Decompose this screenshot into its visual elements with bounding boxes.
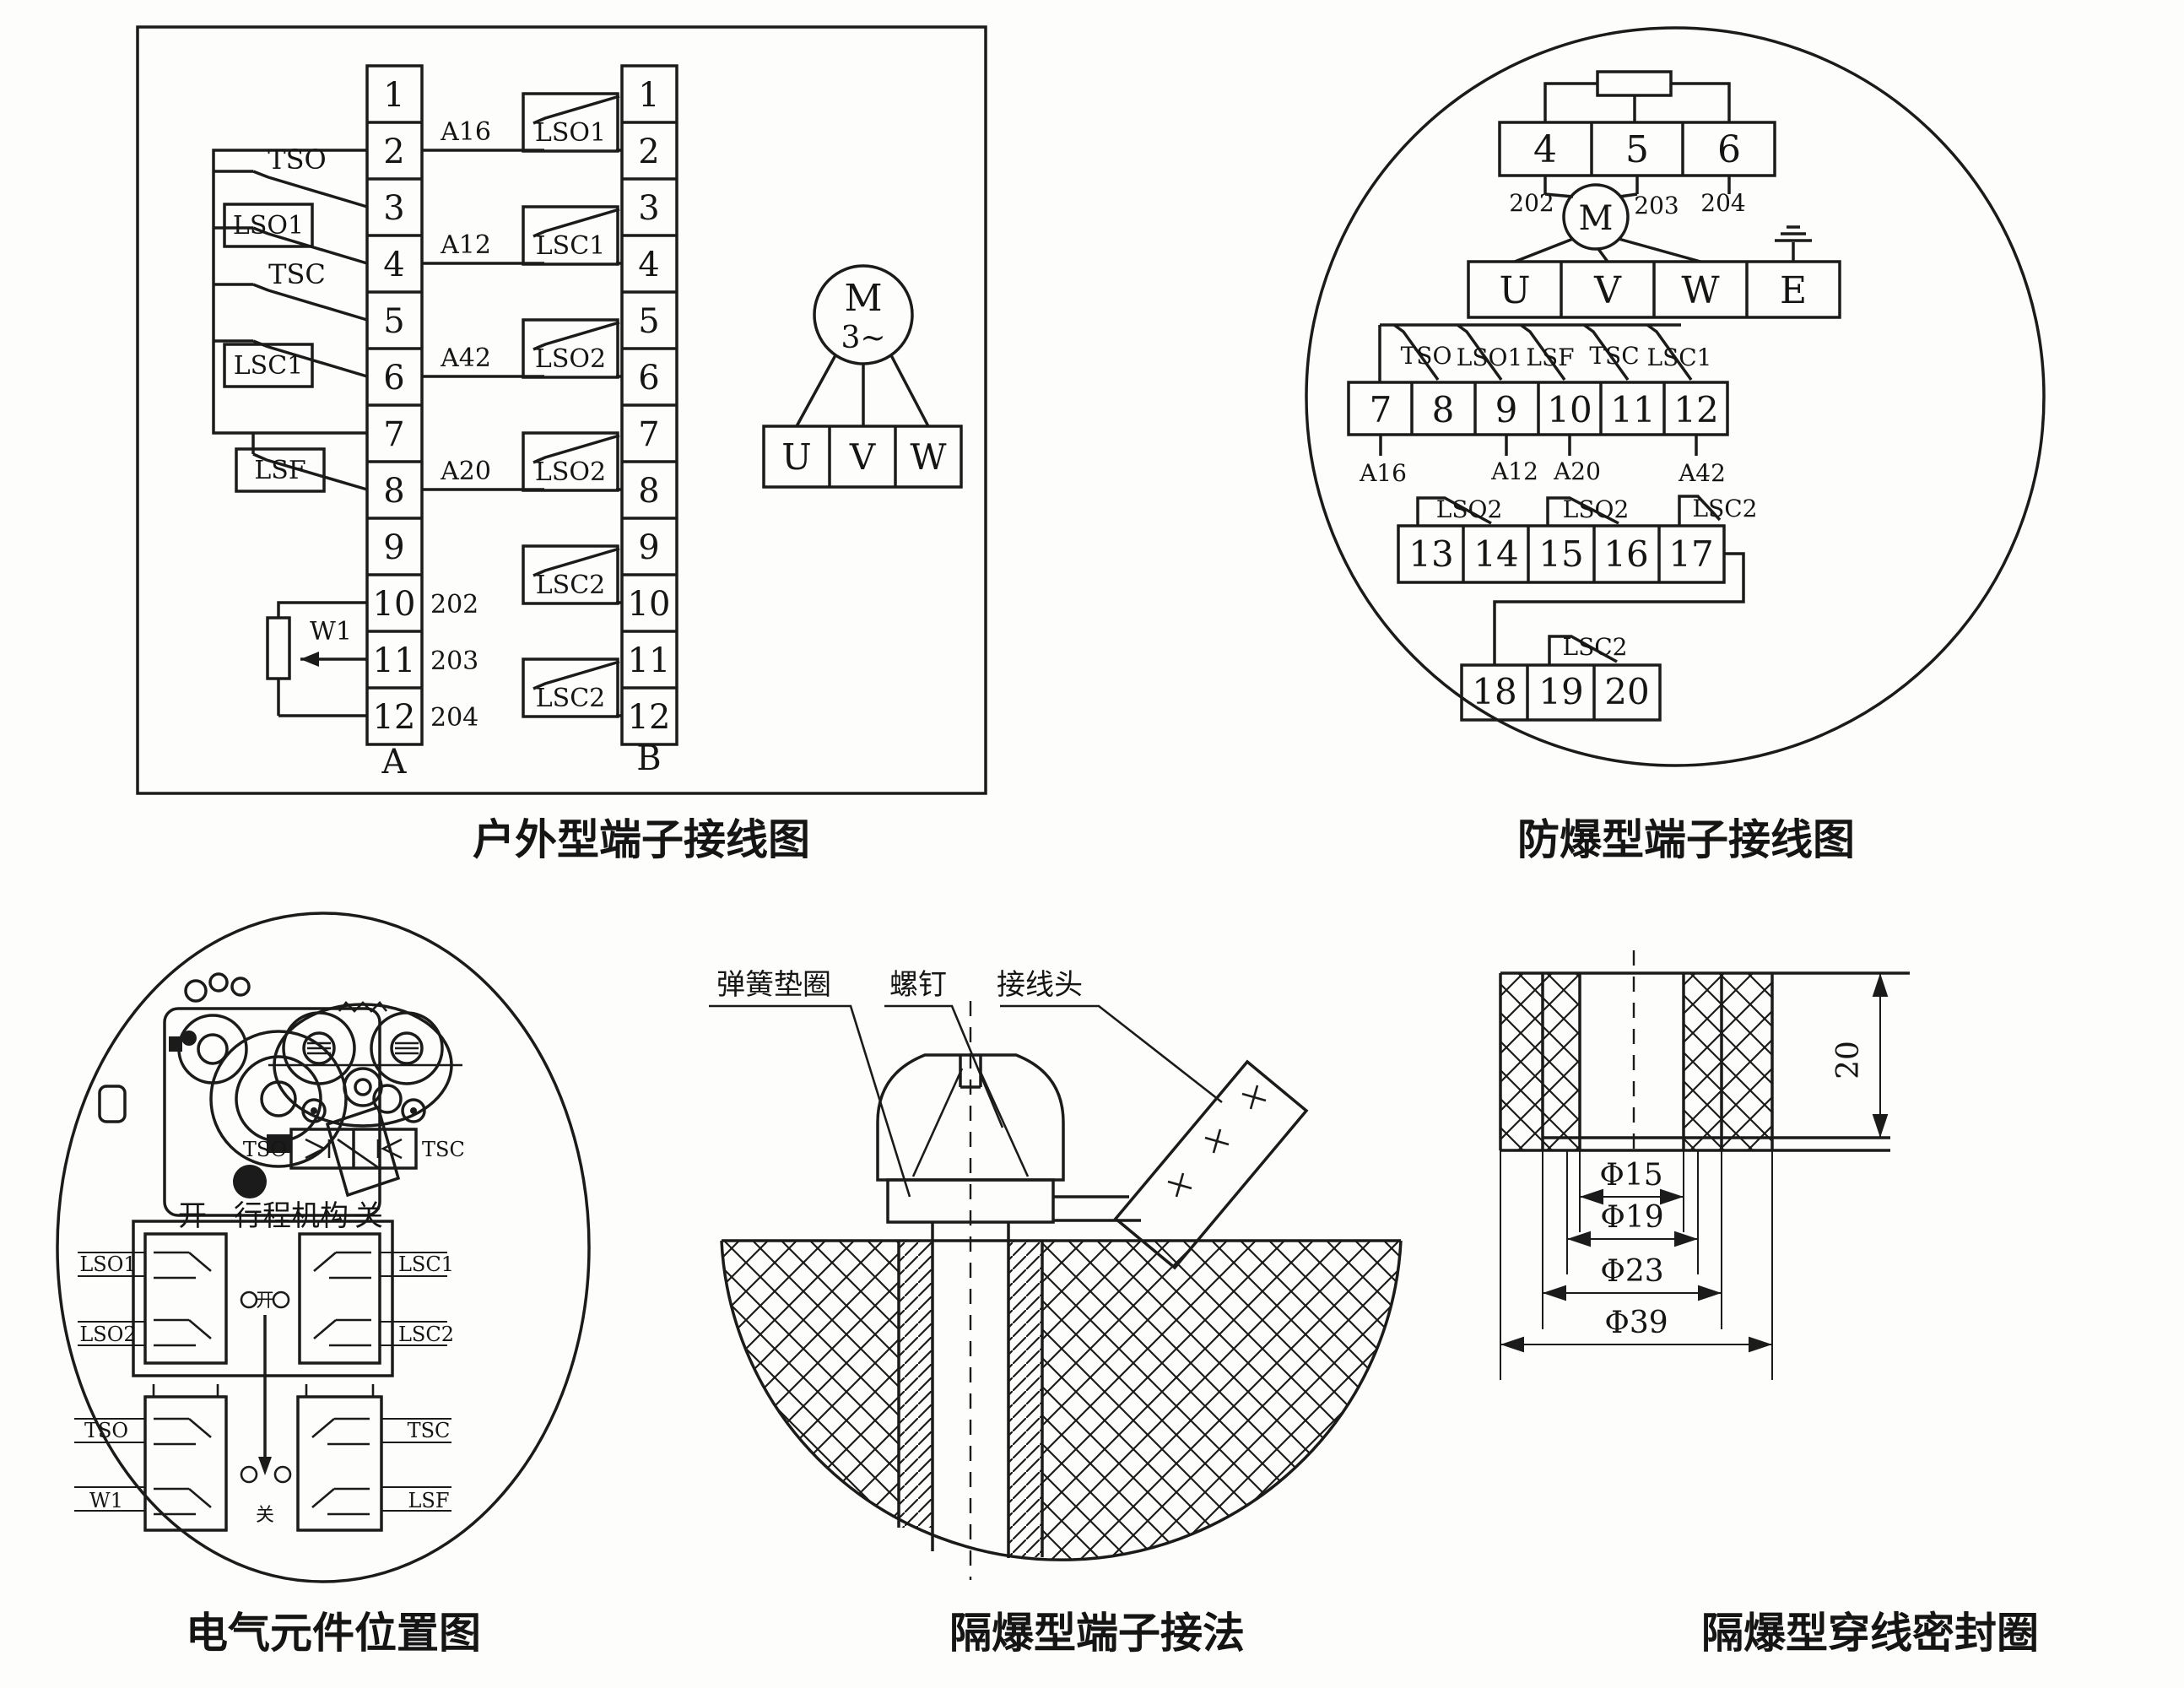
upper-left-2: LSO2 (79, 1323, 136, 1346)
ep-terminal-15: 15 (1538, 533, 1583, 575)
ep-terminal-14: 14 (1473, 533, 1518, 575)
ep-sw-tsc: TSC (1589, 342, 1639, 370)
upper-right-1: LSC1 (398, 1252, 454, 1276)
terminal-a-8: 8 (383, 472, 404, 511)
ep-wire-a20: A20 (1553, 457, 1601, 485)
terminal-a-1: 1 (383, 76, 404, 115)
lower-right-1: TSC (408, 1419, 451, 1442)
terminal-b-11: 11 (628, 641, 671, 680)
ep-terminal-8: 8 (1432, 389, 1455, 430)
lower-right-2: LSF (408, 1489, 449, 1512)
ep-terminal-12: 12 (1673, 389, 1718, 430)
ep-terminal-18: 18 (1472, 671, 1516, 712)
caption-components: 电气元件位置图 (186, 1609, 481, 1658)
housing-section (722, 1001, 1401, 1580)
terminal-a-4: 4 (383, 246, 404, 284)
ep-top-terminals: 4 5 6 202 203 204 (1500, 72, 1775, 219)
strip-a-wire-tags: A16 A12 A42 A20 202 203 204 (422, 117, 544, 733)
ep-sw-lsf: LSF (1526, 344, 1574, 371)
ep-terminal-7: 7 (1370, 389, 1392, 430)
terminal-b-4: 4 (638, 246, 659, 284)
terminal-b-12: 12 (628, 698, 671, 737)
wire-a20: A20 (440, 457, 491, 486)
upper-left-1: LSO1 (79, 1252, 136, 1276)
gear-assembly-view (268, 1003, 462, 1126)
terminal-a-3: 3 (383, 189, 404, 228)
ep-sw-lsc2a: LSC2 (1692, 495, 1757, 522)
flameproof-seal-section: Φ15 Φ19 Φ23 Φ39 20 隔爆型穿线密封圈 (1500, 950, 2039, 1658)
ep-sw-lsc1: LSC1 (1646, 344, 1711, 371)
terminal-b-6: 6 (638, 359, 659, 398)
ep-wire-a42: A42 (1678, 459, 1726, 487)
switch-lsc1-label: LSC1 (234, 351, 304, 381)
ep-terminal-13: 13 (1408, 533, 1453, 575)
ep-sw-lso1: LSO1 (1457, 344, 1523, 371)
terminal-a-7: 7 (383, 415, 404, 454)
ep-wire-203: 203 (1634, 192, 1679, 219)
caption-flameproof-seal: 隔爆型穿线密封圈 (1701, 1609, 2039, 1658)
dim-phi23: Φ23 (1600, 1254, 1663, 1289)
terminal-b-7: 7 (638, 415, 659, 454)
torque-tsc-label: TSC (422, 1138, 465, 1161)
flameproof-terminal-connection: 弹簧垫圈 螺钉 接线头 隔爆型端子接法 (709, 968, 1401, 1658)
component-position-diagram: TSO TSC 开 行程机构 关 开 LSO1 LSO2 LSC1 LSC2 (57, 913, 589, 1658)
b-switch-lso2b: LSO2 (535, 457, 606, 487)
earth-icon (1775, 227, 1812, 262)
ep-row2: TSO LSO1 LSF TSC LSC1 7 8 9 10 11 12 A16… (1349, 325, 1727, 487)
ep-sw-lsc2b: LSC2 (1562, 633, 1627, 661)
strip-b-label: B (636, 739, 661, 778)
terminal-b-3: 3 (638, 189, 659, 228)
terminal-b-10: 10 (628, 585, 671, 624)
caption-explosionproof: 防爆型端子接线图 (1517, 815, 1855, 864)
upper-right-2: LSC2 (398, 1323, 454, 1346)
wire-203: 203 (430, 647, 478, 676)
potentiometer-w1: W1 (268, 603, 367, 716)
w1-label: W1 (310, 617, 352, 647)
phase-u: U (781, 436, 811, 478)
ep-sw-lso2b: LSO2 (1563, 495, 1630, 523)
terminal-strip-b: 1 2 3 4 5 6 7 8 9 10 11 12 B (622, 66, 677, 778)
terminal-b-5: 5 (638, 302, 659, 341)
ep-terminal-20: 20 (1604, 671, 1649, 712)
ep-wire-204: 204 (1700, 189, 1745, 217)
ep-terminal-5: 5 (1625, 128, 1649, 171)
dim-phi39: Φ39 (1604, 1306, 1668, 1340)
outdoor-terminal-diagram: 1 2 3 4 5 6 7 8 9 10 11 12 A TSO LSO1 TS… (138, 27, 986, 864)
terminal-b-8: 8 (638, 472, 659, 511)
header-open: 开 (178, 1199, 207, 1233)
header-title: 行程机构 (234, 1199, 349, 1233)
terminal-a-11: 11 (373, 641, 416, 680)
terminal-a-5: 5 (383, 302, 404, 341)
ep-phase-terminals: U V W E (1468, 227, 1840, 317)
switch-tso-label: TSO (268, 143, 327, 176)
wire-a16: A16 (440, 117, 491, 147)
lower-left-1: TSO (84, 1419, 128, 1442)
ep-phase-e: E (1780, 269, 1807, 312)
terminal-a-9: 9 (383, 528, 404, 567)
ep-resistor (1597, 72, 1671, 95)
ep-phase-u: U (1499, 269, 1530, 312)
ep-wire-a16: A16 (1359, 459, 1407, 487)
lug-label: 接线头 (997, 968, 1083, 1002)
wire-204: 204 (430, 703, 478, 733)
terminal-b-2: 2 (638, 133, 659, 171)
terminal-b-9: 9 (638, 528, 659, 567)
ep-terminal-16: 16 (1603, 533, 1648, 575)
ep-terminal-9: 9 (1495, 389, 1518, 430)
header-close: 关 (354, 1199, 383, 1233)
terminal-a-2: 2 (383, 133, 404, 171)
terminal-b-1: 1 (638, 76, 659, 115)
switch-lso1-label: LSO1 (233, 211, 304, 241)
outdoor-motor: M 3~ U V W (764, 266, 961, 487)
lower-left-2: W1 (89, 1489, 123, 1512)
wire-a12: A12 (440, 230, 491, 260)
switch-lsf-label: LSF (254, 456, 305, 485)
explosionproof-terminal-diagram: 4 5 6 202 203 204 M U V W E TSO LSO1 LSF… (1306, 28, 2044, 864)
ep-terminal-19: 19 (1538, 671, 1583, 712)
ep-sw-lso2a: LSO2 (1436, 495, 1503, 523)
motor-phase: 3~ (841, 321, 885, 355)
b-switch-lsc2b: LSC2 (536, 684, 606, 713)
phase-v: V (849, 436, 876, 478)
b-switch-lsc1: LSC1 (536, 231, 606, 261)
strip-b-switches: LSO1 LSC1 LSO2 LSO2 LSC2 LSC2 (523, 94, 622, 717)
ep-phase-v: V (1593, 269, 1622, 312)
ep-row4: LSC2 18 19 20 (1462, 633, 1660, 720)
dim-phi15: Φ15 (1599, 1158, 1662, 1193)
wire-a42: A42 (440, 344, 491, 373)
ep-sw-tso: TSO (1401, 342, 1452, 370)
strip-a-label: A (381, 743, 408, 782)
lower-center-mark: 关 (256, 1505, 274, 1526)
wire-lug (1053, 1062, 1306, 1268)
terminal-a-12: 12 (373, 698, 416, 737)
b-switch-lso2a: LSO2 (535, 344, 606, 374)
b-switch-lsc2a: LSC2 (536, 571, 606, 600)
ep-terminal-11: 11 (1610, 389, 1655, 430)
diagram-canvas: 1 2 3 4 5 6 7 8 9 10 11 12 A TSO LSO1 TS… (0, 0, 2184, 1688)
ep-terminal-4: 4 (1533, 128, 1557, 171)
ep-terminal-6: 6 (1717, 128, 1741, 171)
phase-w: W (910, 436, 947, 478)
screw-label: 螺钉 (889, 968, 947, 1002)
ep-phase-w: W (1681, 269, 1720, 312)
spring-washer-label: 弹簧垫圈 (716, 968, 831, 1002)
ep-motor-symbol: M (1579, 199, 1614, 238)
ep-terminal-17: 17 (1668, 533, 1713, 575)
terminal-a-10: 10 (373, 585, 416, 624)
down-arrow-icon (258, 1457, 272, 1475)
strip-a-switches: TSO LSO1 TSC LSC1 LSF (214, 143, 367, 491)
switch-tsc-label: TSC (268, 258, 326, 290)
dim-phi19: Φ19 (1600, 1200, 1663, 1235)
motor-symbol: M (844, 277, 882, 320)
ep-terminal-10: 10 (1547, 389, 1592, 430)
upper-center-mark: 开 (256, 1290, 274, 1312)
b-switch-lso1: LSO1 (535, 118, 606, 148)
terminal-a-6: 6 (383, 359, 404, 398)
wiring-diagrams-sheet: 1 2 3 4 5 6 7 8 9 10 11 12 A TSO LSO1 TS… (0, 0, 2184, 1688)
dim-height-20: 20 (1831, 1041, 1866, 1079)
caption-flameproof-terminal: 隔爆型端子接法 (949, 1609, 1245, 1658)
part-labels: 弹簧垫圈 螺钉 接线头 (709, 968, 1222, 1197)
caption-outdoor: 户外型端子接线图 (473, 815, 810, 864)
terminal-strip-a: 1 2 3 4 5 6 7 8 9 10 11 12 A (367, 66, 422, 782)
torque-tso-label: TSO (243, 1138, 287, 1161)
wire-202: 202 (430, 590, 478, 619)
ep-wire-a12: A12 (1490, 457, 1538, 485)
